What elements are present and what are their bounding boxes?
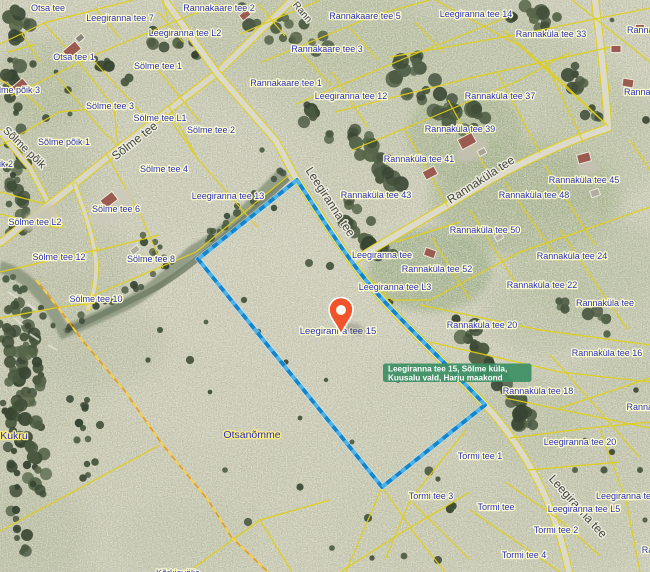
svg-text:Tormi tee 1: Tormi tee 1 bbox=[458, 451, 503, 461]
svg-text:Sölme tee 3: Sölme tee 3 bbox=[86, 101, 134, 111]
svg-text:Kukru: Kukru bbox=[0, 430, 28, 442]
svg-text:Otsa tee 1: Otsa tee 1 bbox=[53, 52, 95, 62]
svg-text:Leegiranna tee 14: Leegiranna tee 14 bbox=[440, 9, 513, 19]
svg-text:Tormi tee: Tormi tee bbox=[477, 502, 514, 512]
svg-text:Rannaküla tee 39: Rannaküla tee 39 bbox=[425, 124, 496, 134]
svg-text:Rannakü: Rannakü bbox=[624, 87, 650, 97]
svg-text:Rannaküla tee 22: Rannaküla tee 22 bbox=[507, 280, 578, 290]
svg-text:Rannaküla tee 33: Rannaküla tee 33 bbox=[516, 29, 587, 39]
svg-text:Sölme tee 2: Sölme tee 2 bbox=[187, 125, 235, 135]
svg-text:Rannaküla tee 43: Rannaküla tee 43 bbox=[341, 190, 412, 200]
svg-text:Leegiranna tee L5: Leegiranna tee L5 bbox=[548, 504, 621, 514]
svg-text:Kõrkjavälja: Kõrkjavälja bbox=[156, 568, 200, 572]
svg-text:Sölme tee 12: Sölme tee 12 bbox=[32, 252, 85, 262]
svg-text:Rannaküla tee: Rannaküla tee bbox=[576, 298, 634, 308]
svg-text:Rannaküla tee 50: Rannaküla tee 50 bbox=[450, 225, 521, 235]
svg-text:Leegiranna tee: Leegiranna tee bbox=[596, 491, 650, 501]
svg-text:Rannakaare tee 3: Rannakaare tee 3 bbox=[291, 44, 363, 54]
svg-text:Rannaküla tee 37: Rannaküla tee 37 bbox=[465, 91, 536, 101]
svg-text:Rannaküla tee 16: Rannaküla tee 16 bbox=[572, 348, 643, 358]
svg-text:Leegiranna tee 12: Leegiranna tee 12 bbox=[315, 91, 388, 101]
svg-text:Leegiranna tee 15, Sõlme küla,: Leegiranna tee 15, Sõlme küla, bbox=[388, 364, 507, 373]
svg-text:Leegiranna tee 13: Leegiranna tee 13 bbox=[192, 191, 265, 201]
svg-text:Rannakü: Rannakü bbox=[627, 25, 650, 35]
svg-text:Leegiranna tee L3: Leegiranna tee L3 bbox=[359, 282, 432, 292]
svg-text:Ran: Ran bbox=[642, 545, 650, 555]
svg-text:Otsanõmme: Otsanõmme bbox=[223, 429, 280, 441]
svg-text:Rannakaare tee 5: Rannakaare tee 5 bbox=[329, 11, 401, 21]
svg-text:Rannaküla tee 48: Rannaküla tee 48 bbox=[499, 190, 570, 200]
svg-text:Rannakaare tee 1: Rannakaare tee 1 bbox=[250, 78, 322, 88]
svg-text:Sölme tee 1: Sölme tee 1 bbox=[134, 61, 182, 71]
svg-text:Leegiranna tee 7: Leegiranna tee 7 bbox=[86, 13, 154, 23]
svg-text:Sõlme põik 3: Sõlme põik 3 bbox=[0, 85, 40, 95]
svg-text:Rannak: Rannak bbox=[626, 402, 650, 412]
svg-text:Kuusalu vald, Harju maakond: Kuusalu vald, Harju maakond bbox=[388, 374, 503, 383]
svg-text:Sõlme põik 1: Sõlme põik 1 bbox=[38, 137, 90, 147]
svg-text:Rannaküla tee 45: Rannaküla tee 45 bbox=[549, 175, 620, 185]
svg-text:Rannaküla tee 20: Rannaküla tee 20 bbox=[447, 320, 518, 330]
svg-text:Sölme tee 4: Sölme tee 4 bbox=[140, 164, 188, 174]
svg-text:Tormi tee 4: Tormi tee 4 bbox=[502, 550, 547, 560]
svg-text:ik 2: ik 2 bbox=[0, 159, 13, 169]
svg-text:Otsa tee: Otsa tee bbox=[31, 3, 65, 13]
svg-text:Leegiranna tee 20: Leegiranna tee 20 bbox=[544, 437, 617, 447]
svg-text:Sölme tee L2: Sölme tee L2 bbox=[8, 217, 61, 227]
svg-text:Sölme tee 10: Sölme tee 10 bbox=[69, 294, 122, 304]
svg-text:Rannaküla tee 24: Rannaküla tee 24 bbox=[537, 251, 608, 261]
svg-text:Sölme tee L1: Sölme tee L1 bbox=[133, 113, 186, 123]
svg-text:Rannakaare tee 2: Rannakaare tee 2 bbox=[183, 3, 255, 13]
svg-text:Sölme tee 6: Sölme tee 6 bbox=[92, 204, 140, 214]
svg-text:Leegiranna tee: Leegiranna tee bbox=[352, 250, 412, 260]
svg-text:Tormi tee 3: Tormi tee 3 bbox=[409, 491, 454, 501]
svg-text:Rannaküla tee 18: Rannaküla tee 18 bbox=[503, 386, 574, 396]
svg-text:Leegiranna tee L2: Leegiranna tee L2 bbox=[149, 28, 222, 38]
svg-text:Rannaküla tee 52: Rannaküla tee 52 bbox=[402, 264, 473, 274]
svg-text:Sölme tee 8: Sölme tee 8 bbox=[127, 254, 175, 264]
svg-text:Tormi tee 2: Tormi tee 2 bbox=[534, 525, 579, 535]
svg-text:Rannaküla tee 41: Rannaküla tee 41 bbox=[384, 154, 455, 164]
